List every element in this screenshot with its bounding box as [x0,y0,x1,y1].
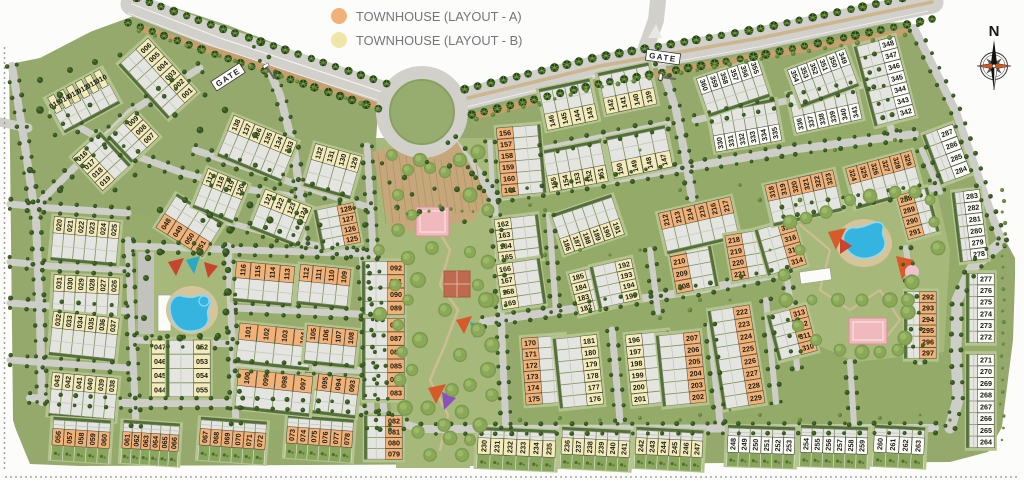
svg-text:106: 106 [321,329,331,342]
svg-text:282: 282 [967,202,980,212]
svg-text:158: 158 [501,151,514,161]
svg-text:205: 205 [688,356,701,366]
svg-text:267: 267 [980,402,992,411]
svg-text:058: 058 [76,432,86,445]
svg-text:198: 198 [630,358,643,368]
svg-text:112: 112 [301,267,311,279]
svg-text:179: 179 [585,359,598,369]
svg-text:200: 200 [632,382,645,392]
svg-text:248: 248 [728,438,737,450]
svg-text:229: 229 [749,393,762,404]
svg-text:068: 068 [211,431,221,444]
svg-text:078: 078 [342,433,352,446]
svg-text:023: 023 [87,222,97,235]
svg-text:242: 242 [636,440,646,452]
svg-text:105: 105 [308,328,318,341]
svg-text:030: 030 [65,277,75,289]
svg-text:029: 029 [76,278,86,290]
svg-text:156: 156 [499,128,512,138]
svg-text:TOWNHOUSE (LAYOUT - B): TOWNHOUSE (LAYOUT - B) [356,33,522,48]
svg-text:056: 056 [53,431,63,444]
svg-text:178: 178 [586,371,599,381]
svg-text:258: 258 [846,439,855,451]
svg-text:085: 085 [390,361,402,370]
svg-text:107: 107 [333,330,343,343]
svg-text:083: 083 [390,389,402,398]
svg-text:264: 264 [980,438,992,447]
svg-text:098: 098 [279,376,289,389]
svg-text:274: 274 [980,309,992,318]
svg-text:227: 227 [745,368,758,379]
svg-text:064: 064 [150,436,160,449]
svg-text:032: 032 [53,314,63,327]
svg-text:075: 075 [309,430,319,443]
svg-text:114: 114 [267,266,277,278]
svg-text:170: 170 [524,338,537,348]
svg-text:228: 228 [747,380,760,391]
svg-text:275: 275 [980,298,992,307]
svg-text:176: 176 [589,394,602,404]
svg-text:067: 067 [200,431,210,444]
svg-text:026: 026 [109,280,119,292]
svg-text:069: 069 [222,432,232,445]
svg-text:037: 037 [108,320,118,333]
svg-text:201: 201 [634,394,647,404]
svg-text:092: 092 [390,264,402,273]
svg-text:241: 241 [619,443,629,455]
svg-text:097: 097 [298,378,308,391]
svg-text:279: 279 [971,237,984,247]
svg-text:251: 251 [762,439,771,451]
svg-text:041: 041 [74,377,84,390]
svg-text:236: 236 [562,440,572,452]
svg-text:235: 235 [544,443,554,455]
svg-text:280: 280 [970,226,983,236]
svg-text:224: 224 [739,331,752,342]
svg-text:102: 102 [261,328,271,341]
svg-text:162: 162 [497,219,510,229]
svg-text:079: 079 [388,450,400,459]
svg-text:271: 271 [980,356,992,365]
svg-text:239: 239 [596,442,606,454]
svg-text:297: 297 [922,349,934,358]
svg-text:100: 100 [242,372,252,385]
svg-text:250: 250 [751,439,760,451]
svg-text:255: 255 [812,438,821,450]
svg-text:295: 295 [922,326,934,335]
svg-text:111: 111 [314,268,324,280]
svg-text:038: 038 [107,380,117,393]
svg-text:244: 244 [659,441,669,453]
svg-text:021: 021 [65,220,75,233]
svg-text:202: 202 [692,392,705,402]
svg-text:028: 028 [87,279,97,291]
svg-text:270: 270 [980,367,992,376]
svg-text:087: 087 [390,334,402,343]
svg-text:036: 036 [97,318,107,331]
svg-text:293: 293 [922,304,934,313]
svg-text:265: 265 [980,426,992,435]
svg-text:230: 230 [479,440,489,452]
svg-text:040: 040 [85,378,95,391]
svg-text:020: 020 [54,219,64,232]
svg-text:206: 206 [687,345,700,355]
svg-text:054: 054 [196,371,208,380]
svg-text:103: 103 [280,330,290,343]
svg-text:066: 066 [169,437,179,450]
svg-text:035: 035 [86,317,96,330]
svg-text:055: 055 [196,386,208,395]
svg-text:108: 108 [346,332,356,345]
svg-text:113: 113 [282,268,292,280]
svg-text:045: 045 [154,371,166,380]
svg-text:094: 094 [333,378,343,391]
svg-text:245: 245 [670,442,680,454]
svg-text:109: 109 [339,271,349,284]
svg-text:110: 110 [326,269,336,281]
svg-text:199: 199 [631,370,644,380]
svg-text:099: 099 [261,374,271,387]
svg-text:238: 238 [585,441,595,453]
svg-text:252: 252 [773,439,782,451]
svg-text:070: 070 [233,433,243,446]
svg-text:089: 089 [390,304,402,313]
svg-text:157: 157 [500,139,513,149]
svg-text:059: 059 [88,433,98,446]
svg-text:181: 181 [583,336,596,346]
svg-text:233: 233 [518,442,528,454]
svg-text:172: 172 [525,361,538,371]
svg-text:057: 057 [65,431,75,444]
svg-text:223: 223 [737,319,750,330]
svg-text:060: 060 [99,434,109,447]
svg-text:196: 196 [628,335,641,345]
svg-text:022: 022 [76,221,86,234]
svg-text:031: 031 [54,277,64,289]
svg-text:226: 226 [743,356,756,367]
svg-text:231: 231 [492,440,502,452]
svg-text:062: 062 [132,434,142,447]
svg-text:259: 259 [857,440,866,452]
svg-text:061: 061 [122,434,132,447]
svg-text:249: 249 [739,438,748,450]
svg-text:042: 042 [63,376,73,389]
svg-text:076: 076 [320,431,330,444]
svg-text:034: 034 [75,316,85,329]
svg-text:276: 276 [980,286,992,295]
svg-text:116: 116 [238,264,248,276]
svg-text:173: 173 [526,372,539,382]
svg-text:207: 207 [686,333,699,343]
svg-text:180: 180 [584,348,597,358]
svg-text:095: 095 [319,376,329,389]
svg-text:174: 174 [527,383,540,393]
svg-text:261: 261 [888,438,898,450]
svg-text:071: 071 [244,434,254,447]
svg-text:074: 074 [298,429,308,442]
svg-text:266: 266 [980,414,992,423]
svg-text:080: 080 [388,439,400,448]
svg-text:039: 039 [96,379,106,392]
svg-text:246: 246 [681,442,691,454]
svg-text:256: 256 [824,439,833,451]
svg-text:197: 197 [629,347,642,357]
svg-text:077: 077 [331,432,341,445]
svg-text:072: 072 [255,435,265,448]
svg-text:044: 044 [154,386,166,395]
svg-text:294: 294 [922,315,934,324]
svg-text:052: 052 [196,343,208,352]
svg-text:033: 033 [64,315,74,328]
svg-text:257: 257 [835,439,844,451]
svg-text:292: 292 [922,293,934,302]
svg-text:025: 025 [109,224,119,237]
svg-text:063: 063 [141,435,151,448]
svg-text:277: 277 [980,275,992,284]
svg-text:263: 263 [913,440,923,452]
svg-text:240: 240 [608,442,618,454]
svg-text:254: 254 [801,438,810,450]
svg-text:093: 093 [347,380,357,393]
svg-text:237: 237 [574,440,584,452]
svg-text:225: 225 [741,343,754,354]
svg-text:047: 047 [154,343,166,352]
svg-text:268: 268 [980,391,992,400]
svg-text:027: 027 [98,279,108,291]
svg-text:171: 171 [524,349,537,359]
svg-text:203: 203 [690,380,703,390]
svg-text:043: 043 [52,375,62,388]
svg-text:273: 273 [980,321,992,330]
svg-text:166: 166 [498,264,511,275]
svg-text:243: 243 [647,440,657,452]
svg-text:046: 046 [154,357,166,366]
svg-text:115: 115 [253,265,263,277]
svg-text:260: 260 [875,438,885,450]
svg-text:272: 272 [980,333,992,342]
svg-text:177: 177 [587,382,600,392]
svg-text:TOWNHOUSE (LAYOUT - A): TOWNHOUSE (LAYOUT - A) [356,9,522,24]
svg-text:175: 175 [528,394,541,404]
svg-text:N: N [989,23,1000,40]
svg-text:232: 232 [505,441,515,453]
svg-text:090: 090 [390,290,402,299]
svg-text:234: 234 [531,442,541,454]
svg-text:159: 159 [502,162,515,172]
svg-text:024: 024 [98,223,108,236]
svg-text:160: 160 [503,174,516,184]
svg-text:204: 204 [689,368,702,378]
svg-text:065: 065 [160,436,170,449]
svg-text:101: 101 [243,326,253,339]
svg-text:053: 053 [196,357,208,366]
svg-text:247: 247 [692,443,702,455]
svg-text:253: 253 [784,440,793,452]
svg-text:283: 283 [966,191,979,201]
svg-text:222: 222 [735,307,748,318]
svg-text:163: 163 [498,230,511,240]
svg-text:262: 262 [901,439,911,451]
svg-text:281: 281 [968,214,981,224]
svg-text:073: 073 [287,429,297,442]
svg-text:167: 167 [500,275,513,286]
svg-text:269: 269 [980,379,992,388]
